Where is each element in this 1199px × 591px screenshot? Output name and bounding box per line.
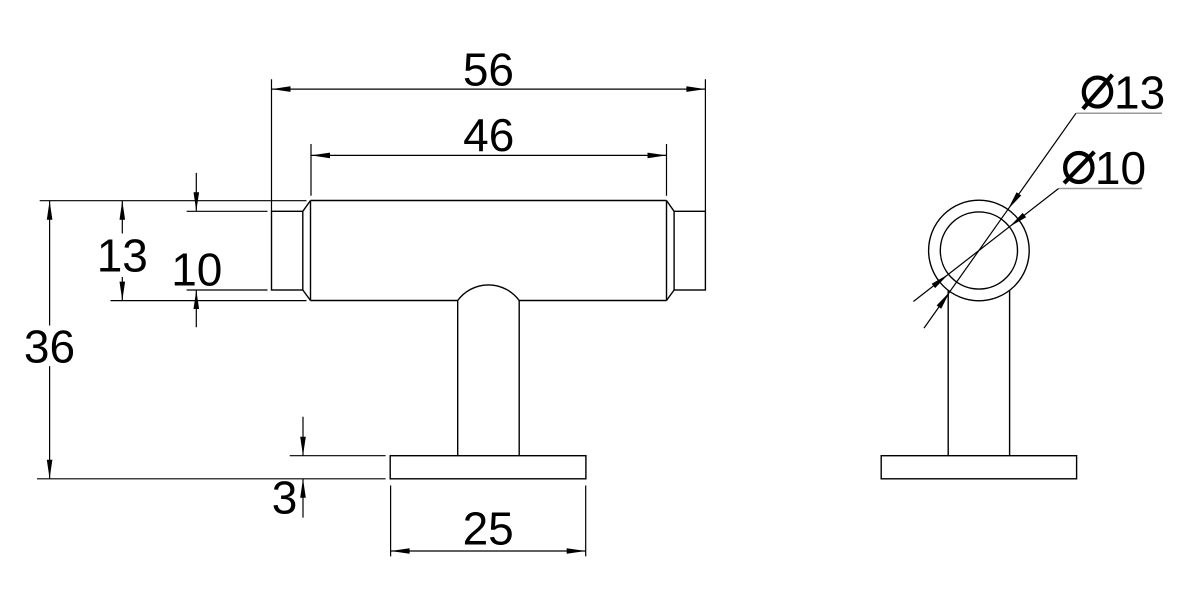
svg-text:10: 10 — [1095, 142, 1146, 194]
svg-text:56: 56 — [463, 44, 514, 96]
svg-text:36: 36 — [24, 320, 75, 372]
svg-text:46: 46 — [463, 109, 514, 161]
svg-text:13: 13 — [1114, 66, 1165, 118]
svg-text:10: 10 — [171, 243, 222, 295]
svg-text:3: 3 — [272, 471, 298, 523]
svg-text:25: 25 — [463, 503, 514, 555]
svg-text:13: 13 — [97, 230, 148, 282]
